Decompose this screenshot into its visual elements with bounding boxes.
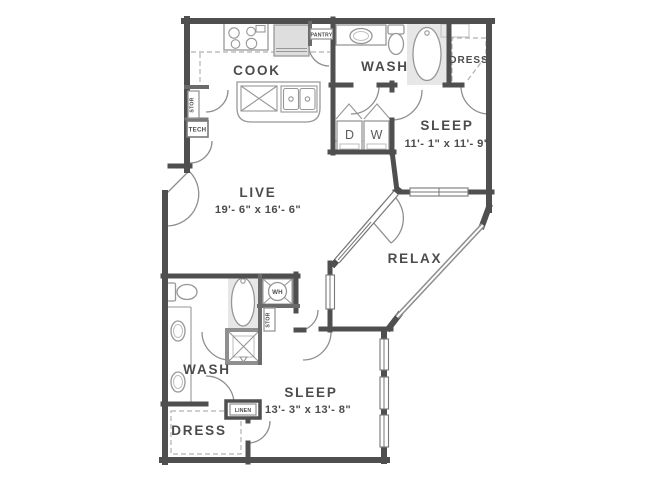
sleep-lower-door [303, 332, 331, 360]
room-label-dress-upper: DRESS [449, 55, 488, 66]
room-label-cook: COOK [233, 63, 281, 78]
closet-label-stor-upper: STOR [190, 97, 196, 112]
wash-upper-door [351, 86, 379, 114]
toilet-upper [388, 25, 404, 55]
floor-plan: COOK WASH DRESS SLEEP 11'- 1" x 11'- 9" … [0, 0, 650, 490]
closet-label-tech: TECH [189, 127, 207, 134]
screen-wall [397, 225, 483, 317]
window-sleep-lower-3 [380, 415, 389, 447]
window-sleep-upper [410, 188, 468, 196]
toilet-lower [167, 283, 197, 301]
window-sleep-lower-2 [380, 377, 389, 409]
sleep-upper-door [392, 90, 422, 120]
window-sleep-lower-1 [380, 339, 389, 370]
room-label-relax: RELAX [388, 251, 443, 266]
dryer-label: D [345, 128, 354, 142]
floor-plan-drawing: COOK WASH DRESS SLEEP 11'- 1" x 11'- 9" … [0, 0, 650, 490]
washer-label: W [371, 128, 383, 142]
water-heater-label: WH [272, 289, 283, 296]
bathtub-lower [232, 278, 255, 326]
kitchen-island [237, 82, 320, 122]
dress-upper-door [461, 86, 489, 114]
labels: COOK WASH DRESS SLEEP 11'- 1" x 11'- 9" … [171, 33, 489, 439]
room-label-sleep-upper: SLEEP [420, 118, 473, 133]
bathtub-upper [413, 28, 441, 81]
closet-label-linen: LINEN [235, 408, 252, 414]
vanity-upper [336, 25, 386, 45]
entry-door [166, 171, 199, 226]
shower [227, 330, 260, 363]
door-swings [166, 46, 489, 443]
stor-upper-door [206, 90, 228, 112]
tech-door [190, 141, 212, 163]
vanity-lower [165, 307, 191, 403]
room-label-wash-lower: WASH [183, 362, 231, 377]
closet-label-stor-lower: STOR [266, 312, 272, 327]
dress-lower-door [248, 421, 270, 443]
room-label-sleep-lower: SLEEP [284, 385, 337, 400]
pantry-door [309, 46, 329, 66]
room-dims-sleep-upper: 11'- 1" x 11'- 9" [405, 138, 490, 150]
kitchen-stove [224, 23, 268, 50]
refrigerator [274, 25, 309, 56]
room-label-dress-lower: DRESS [171, 423, 227, 438]
room-label-live: LIVE [239, 185, 276, 200]
room-dims-sleep-lower: 13'- 3" x 13'- 8" [265, 404, 351, 416]
window-balcony [326, 275, 335, 309]
closet-label-pantry: PANTRY [311, 33, 333, 39]
room-label-wash-upper: WASH [361, 59, 409, 74]
room-dims-live: 19'- 6" x 16'- 6" [215, 204, 301, 216]
